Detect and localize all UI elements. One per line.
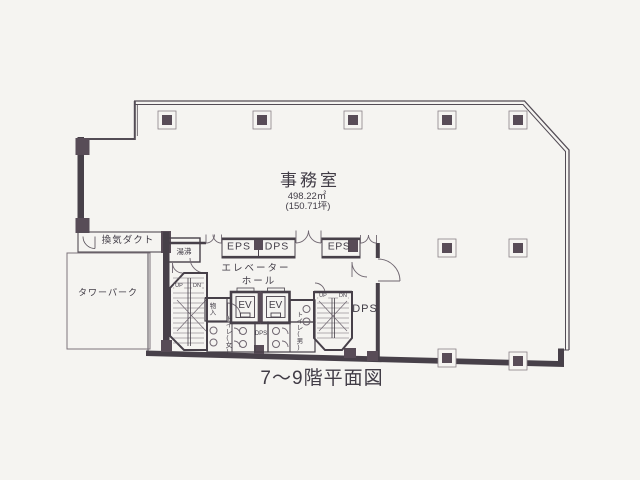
plan-caption: 7〜9階平面図 bbox=[260, 369, 383, 389]
tower-park-label: タワーパーク bbox=[78, 288, 138, 297]
storage-label: 物入 bbox=[206, 303, 216, 316]
left-wall-column-top bbox=[76, 138, 90, 155]
eps-dps-divider-block bbox=[254, 240, 263, 250]
elevator-hall-label-line1: エレベーター bbox=[221, 264, 290, 274]
left-wall-column-bottom bbox=[76, 218, 90, 233]
core-block-3 bbox=[344, 348, 356, 358]
stair-right bbox=[314, 292, 352, 350]
core-block-1 bbox=[161, 340, 172, 352]
dps1-label: DPS bbox=[265, 241, 290, 252]
office-area-tsubo-label: (150.71坪) bbox=[286, 202, 331, 212]
ev2-label: EV bbox=[269, 301, 282, 312]
toilet-men-label: トイレ(男) bbox=[293, 311, 303, 351]
toilet-women-label: トイレ(女) bbox=[222, 315, 232, 355]
ev1-label: EV bbox=[238, 301, 251, 312]
eps1-label: EPS bbox=[227, 241, 251, 252]
stair-left-up-label: UP bbox=[174, 284, 184, 290]
core-block-4 bbox=[367, 351, 378, 361]
hot-water-label: 湯沸 bbox=[177, 248, 192, 256]
floorplan-drawing bbox=[0, 0, 640, 480]
outer-walls bbox=[83, 101, 569, 359]
office-name-label: 事務室 bbox=[280, 172, 340, 190]
elevator-separator bbox=[258, 292, 263, 323]
dps-room-label: DPS bbox=[352, 304, 378, 316]
eps2-label: EPS bbox=[328, 241, 351, 252]
tower-park-box bbox=[67, 253, 150, 349]
stair-right-dn-label: DN bbox=[338, 294, 348, 300]
vent-duct-label: 換気ダクト bbox=[102, 236, 155, 246]
stair-left-dn-label: DN bbox=[192, 284, 202, 290]
floorplan-page: 事務室 498.22㎡ (150.71坪) 換気ダクト タワーパーク 湯沸 EP… bbox=[0, 0, 640, 480]
dps-small-label: DPS bbox=[255, 331, 267, 337]
elevator-hall-label-line2: ホール bbox=[242, 277, 277, 287]
stair-right-up-label: UP bbox=[318, 294, 328, 300]
